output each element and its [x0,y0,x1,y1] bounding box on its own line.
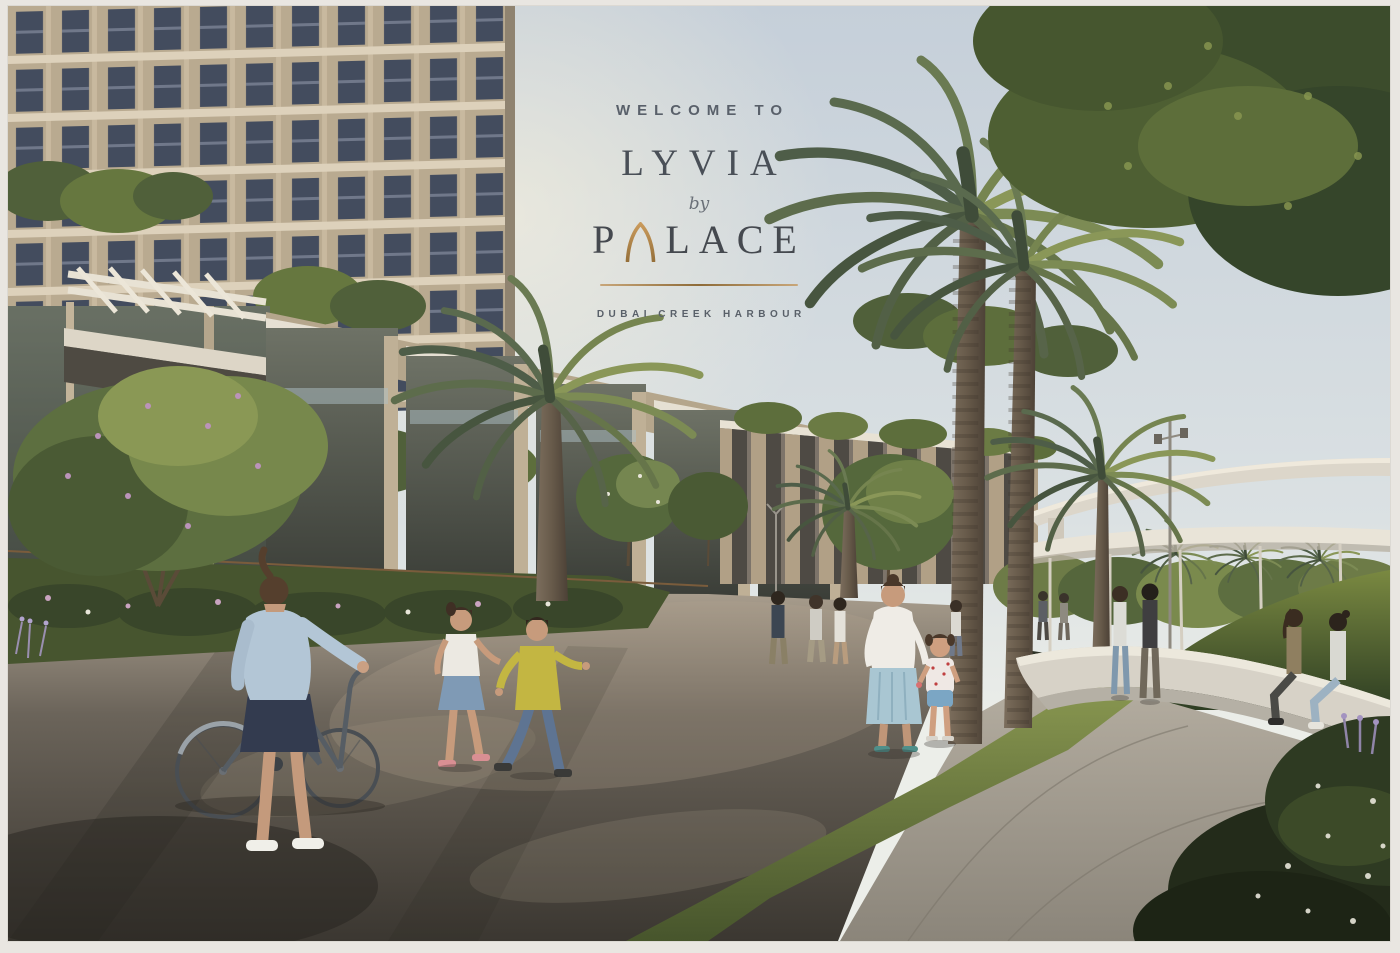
brand-name: LYVIA [439,142,959,185]
palace-arch-icon [625,222,656,262]
brand-lockup: WELCOME TO LYVIA by P LACE DUBAI CREEK H… [439,102,959,320]
photo-frame: WELCOME TO LYVIA by P LACE DUBAI CREEK H… [8,6,1390,941]
brand-by: by [439,194,959,214]
gold-divider [600,284,798,286]
tagline: DUBAI CREEK HARBOUR [439,309,959,320]
brand-palace: P LACE [439,216,959,263]
palace-letter-p: P [592,216,623,263]
palace-letters-lace: LACE [665,216,805,263]
welcome-text: WELCOME TO [439,102,959,119]
